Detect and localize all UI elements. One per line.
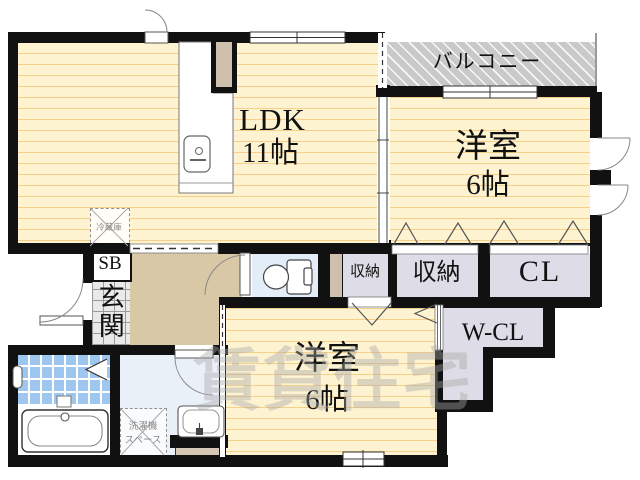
wall bbox=[8, 345, 175, 355]
wall bbox=[218, 243, 397, 254]
bedroom2-left-wall bbox=[219, 300, 226, 457]
bath-tile-floor bbox=[16, 352, 112, 405]
ldk-floor bbox=[18, 42, 378, 245]
bedroom1-size-label: 6帖 bbox=[438, 170, 538, 200]
wall bbox=[8, 32, 145, 43]
balcony-label: バルコニー bbox=[395, 52, 580, 73]
wall bbox=[385, 86, 443, 97]
wall bbox=[168, 32, 250, 43]
genkan-label: 玄関 bbox=[96, 283, 123, 341]
shoe-box-label: SB bbox=[92, 254, 128, 274]
bathtub-area bbox=[16, 405, 112, 455]
ldk-entry-door bbox=[145, 10, 168, 43]
hallway-floor-toilet-front bbox=[218, 253, 242, 298]
storage-small-label: 収納 bbox=[342, 265, 388, 281]
wall bbox=[8, 345, 18, 467]
wall bbox=[83, 251, 92, 283]
bedroom1-right-door-2 bbox=[598, 185, 628, 215]
ldk-label: LDK bbox=[230, 104, 315, 137]
hallway-floor bbox=[128, 253, 222, 345]
wall-fill-strip bbox=[329, 253, 343, 300]
walk-in-closet-label: W-CL bbox=[443, 320, 543, 346]
bedroom1-right-door-1 bbox=[598, 138, 630, 170]
walk-in-closet-lower bbox=[443, 347, 483, 400]
floorplan: LDK 11帖 洋室 6帖 洋室 6帖 バルコニー 収納 収納 CL W-CL … bbox=[0, 0, 640, 480]
wall bbox=[437, 405, 447, 467]
refrigerator-label: 冷蔵庫 bbox=[90, 221, 128, 233]
wall bbox=[376, 85, 390, 97]
wall bbox=[8, 455, 230, 467]
hall-sliding-door bbox=[130, 244, 218, 253]
wall bbox=[388, 297, 600, 308]
toilet-floor bbox=[252, 254, 318, 298]
ldk-size-label: 11帖 bbox=[228, 138, 313, 168]
washer-space-label: 洗濯機 スペース bbox=[116, 420, 170, 449]
wall bbox=[590, 215, 602, 307]
balcony-rail-line bbox=[595, 33, 597, 90]
ldk-bedroom1-partition bbox=[377, 97, 389, 243]
bedroom1-label: 洋室 bbox=[438, 130, 538, 165]
wall bbox=[345, 32, 385, 43]
bedroom2-floor bbox=[225, 308, 437, 457]
wall bbox=[537, 86, 597, 97]
wall bbox=[590, 170, 611, 185]
storage-label: 収納 bbox=[395, 261, 478, 286]
wall bbox=[483, 347, 555, 358]
wall bbox=[435, 347, 443, 404]
bedroom2-size-label: 6帖 bbox=[272, 385, 382, 415]
wall bbox=[390, 243, 598, 246]
entrance-door bbox=[40, 279, 83, 325]
wall bbox=[8, 32, 18, 251]
wall bbox=[590, 92, 602, 138]
wall bbox=[377, 240, 391, 248]
closet-label: CL bbox=[490, 256, 590, 288]
bedroom2-label: 洋室 bbox=[272, 342, 382, 377]
wall bbox=[219, 455, 448, 467]
wall bbox=[318, 243, 330, 301]
